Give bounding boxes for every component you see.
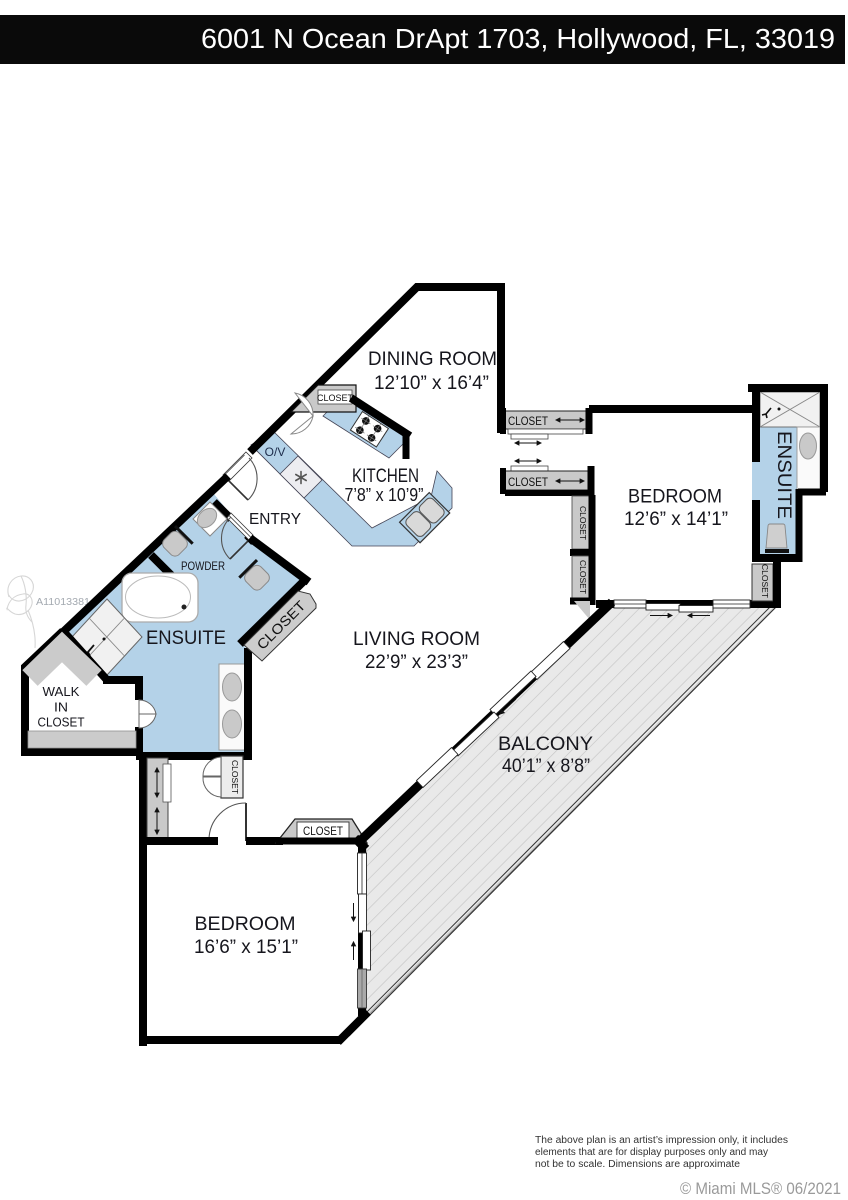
svg-text:6001 N Ocean DrApt 1703, Holly: 6001 N Ocean DrApt 1703, Hollywood, FL, … [201, 23, 835, 54]
svg-text:BEDROOM: BEDROOM [195, 913, 296, 935]
svg-text:CLOSET: CLOSET [230, 760, 240, 794]
svg-text:16’6” x 15’1”: 16’6” x 15’1” [194, 937, 298, 958]
svg-text:ENSUITE: ENSUITE [146, 627, 226, 649]
svg-text:BEDROOM: BEDROOM [628, 486, 722, 508]
svg-text:© Miami MLS® 06/2021: © Miami MLS® 06/2021 [680, 1180, 841, 1198]
svg-text:ENTRY: ENTRY [249, 511, 301, 528]
svg-text:CLOSET: CLOSET [760, 564, 770, 598]
svg-text:O/V: O/V [265, 445, 286, 459]
svg-text:40’1” x 8’8”: 40’1” x 8’8” [502, 756, 590, 777]
svg-text:CLOSET: CLOSET [317, 393, 354, 403]
svg-text:CLOSET: CLOSET [303, 824, 344, 838]
svg-text:LIVING ROOM: LIVING ROOM [353, 628, 480, 650]
svg-text:elements that are for display: elements that are for display purposes o… [535, 1147, 768, 1158]
svg-text:A11013381: A11013381 [36, 596, 90, 608]
svg-text:CLOSET: CLOSET [578, 506, 588, 540]
svg-text:ENSUITE: ENSUITE [773, 431, 794, 519]
svg-text:DINING ROOM: DINING ROOM [368, 348, 497, 370]
svg-text:CLOSET: CLOSET [508, 477, 548, 489]
svg-text:12’10” x 16’4”: 12’10” x 16’4” [374, 373, 489, 394]
svg-text:WALK: WALK [43, 684, 80, 699]
svg-text:CLOSET: CLOSET [38, 715, 85, 730]
svg-text:POWDER: POWDER [181, 559, 225, 573]
svg-text:CLOSET: CLOSET [508, 416, 548, 428]
svg-text:IN: IN [54, 700, 68, 715]
svg-text:CLOSET: CLOSET [578, 560, 588, 594]
svg-text:BALCONY: BALCONY [498, 733, 593, 755]
svg-text:7’8” x 10’9”: 7’8” x 10’9” [345, 484, 424, 505]
svg-text:12’6” x 14’1”: 12’6” x 14’1” [624, 509, 728, 530]
svg-text:The above plan is an artist’s: The above plan is an artist’s impression… [535, 1135, 788, 1146]
svg-text:22’9” x 23’3”: 22’9” x 23’3” [365, 652, 468, 673]
svg-text:not be to scale. Dimensions ar: not be to scale. Dimensions are approxim… [535, 1159, 740, 1170]
